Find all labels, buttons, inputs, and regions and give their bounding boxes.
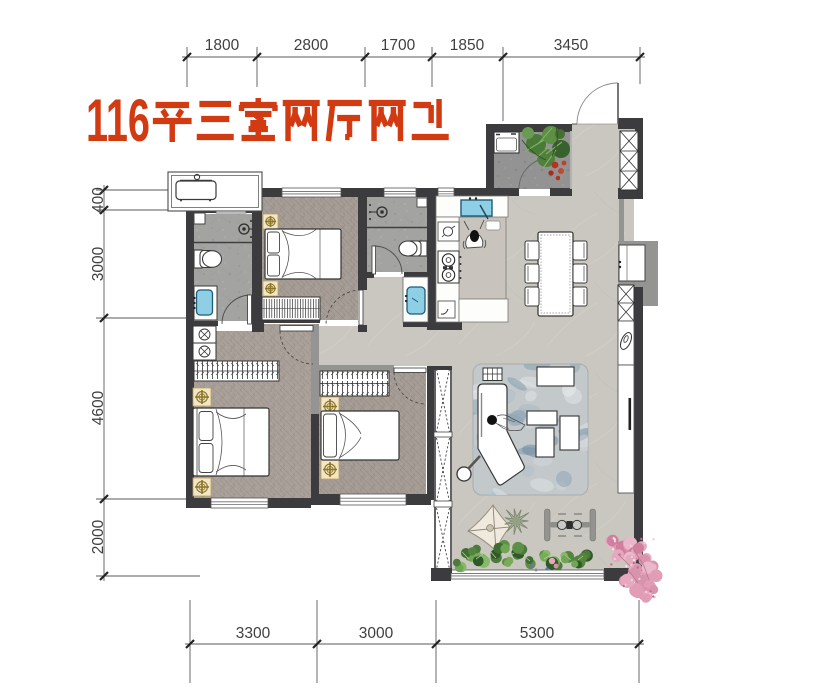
svg-text:400: 400 xyxy=(90,187,107,213)
svg-text:116: 116 xyxy=(86,87,150,154)
svg-text:1850: 1850 xyxy=(450,37,485,54)
svg-text:2000: 2000 xyxy=(90,519,107,554)
svg-text:3000: 3000 xyxy=(90,246,107,281)
svg-text:2800: 2800 xyxy=(294,37,329,54)
svg-text:3450: 3450 xyxy=(554,37,589,54)
svg-text:1700: 1700 xyxy=(381,37,416,54)
svg-text:5300: 5300 xyxy=(520,625,555,642)
svg-text:3000: 3000 xyxy=(359,625,394,642)
svg-text:1800: 1800 xyxy=(205,37,240,54)
svg-text:4600: 4600 xyxy=(90,390,107,425)
svg-text:3300: 3300 xyxy=(236,625,271,642)
